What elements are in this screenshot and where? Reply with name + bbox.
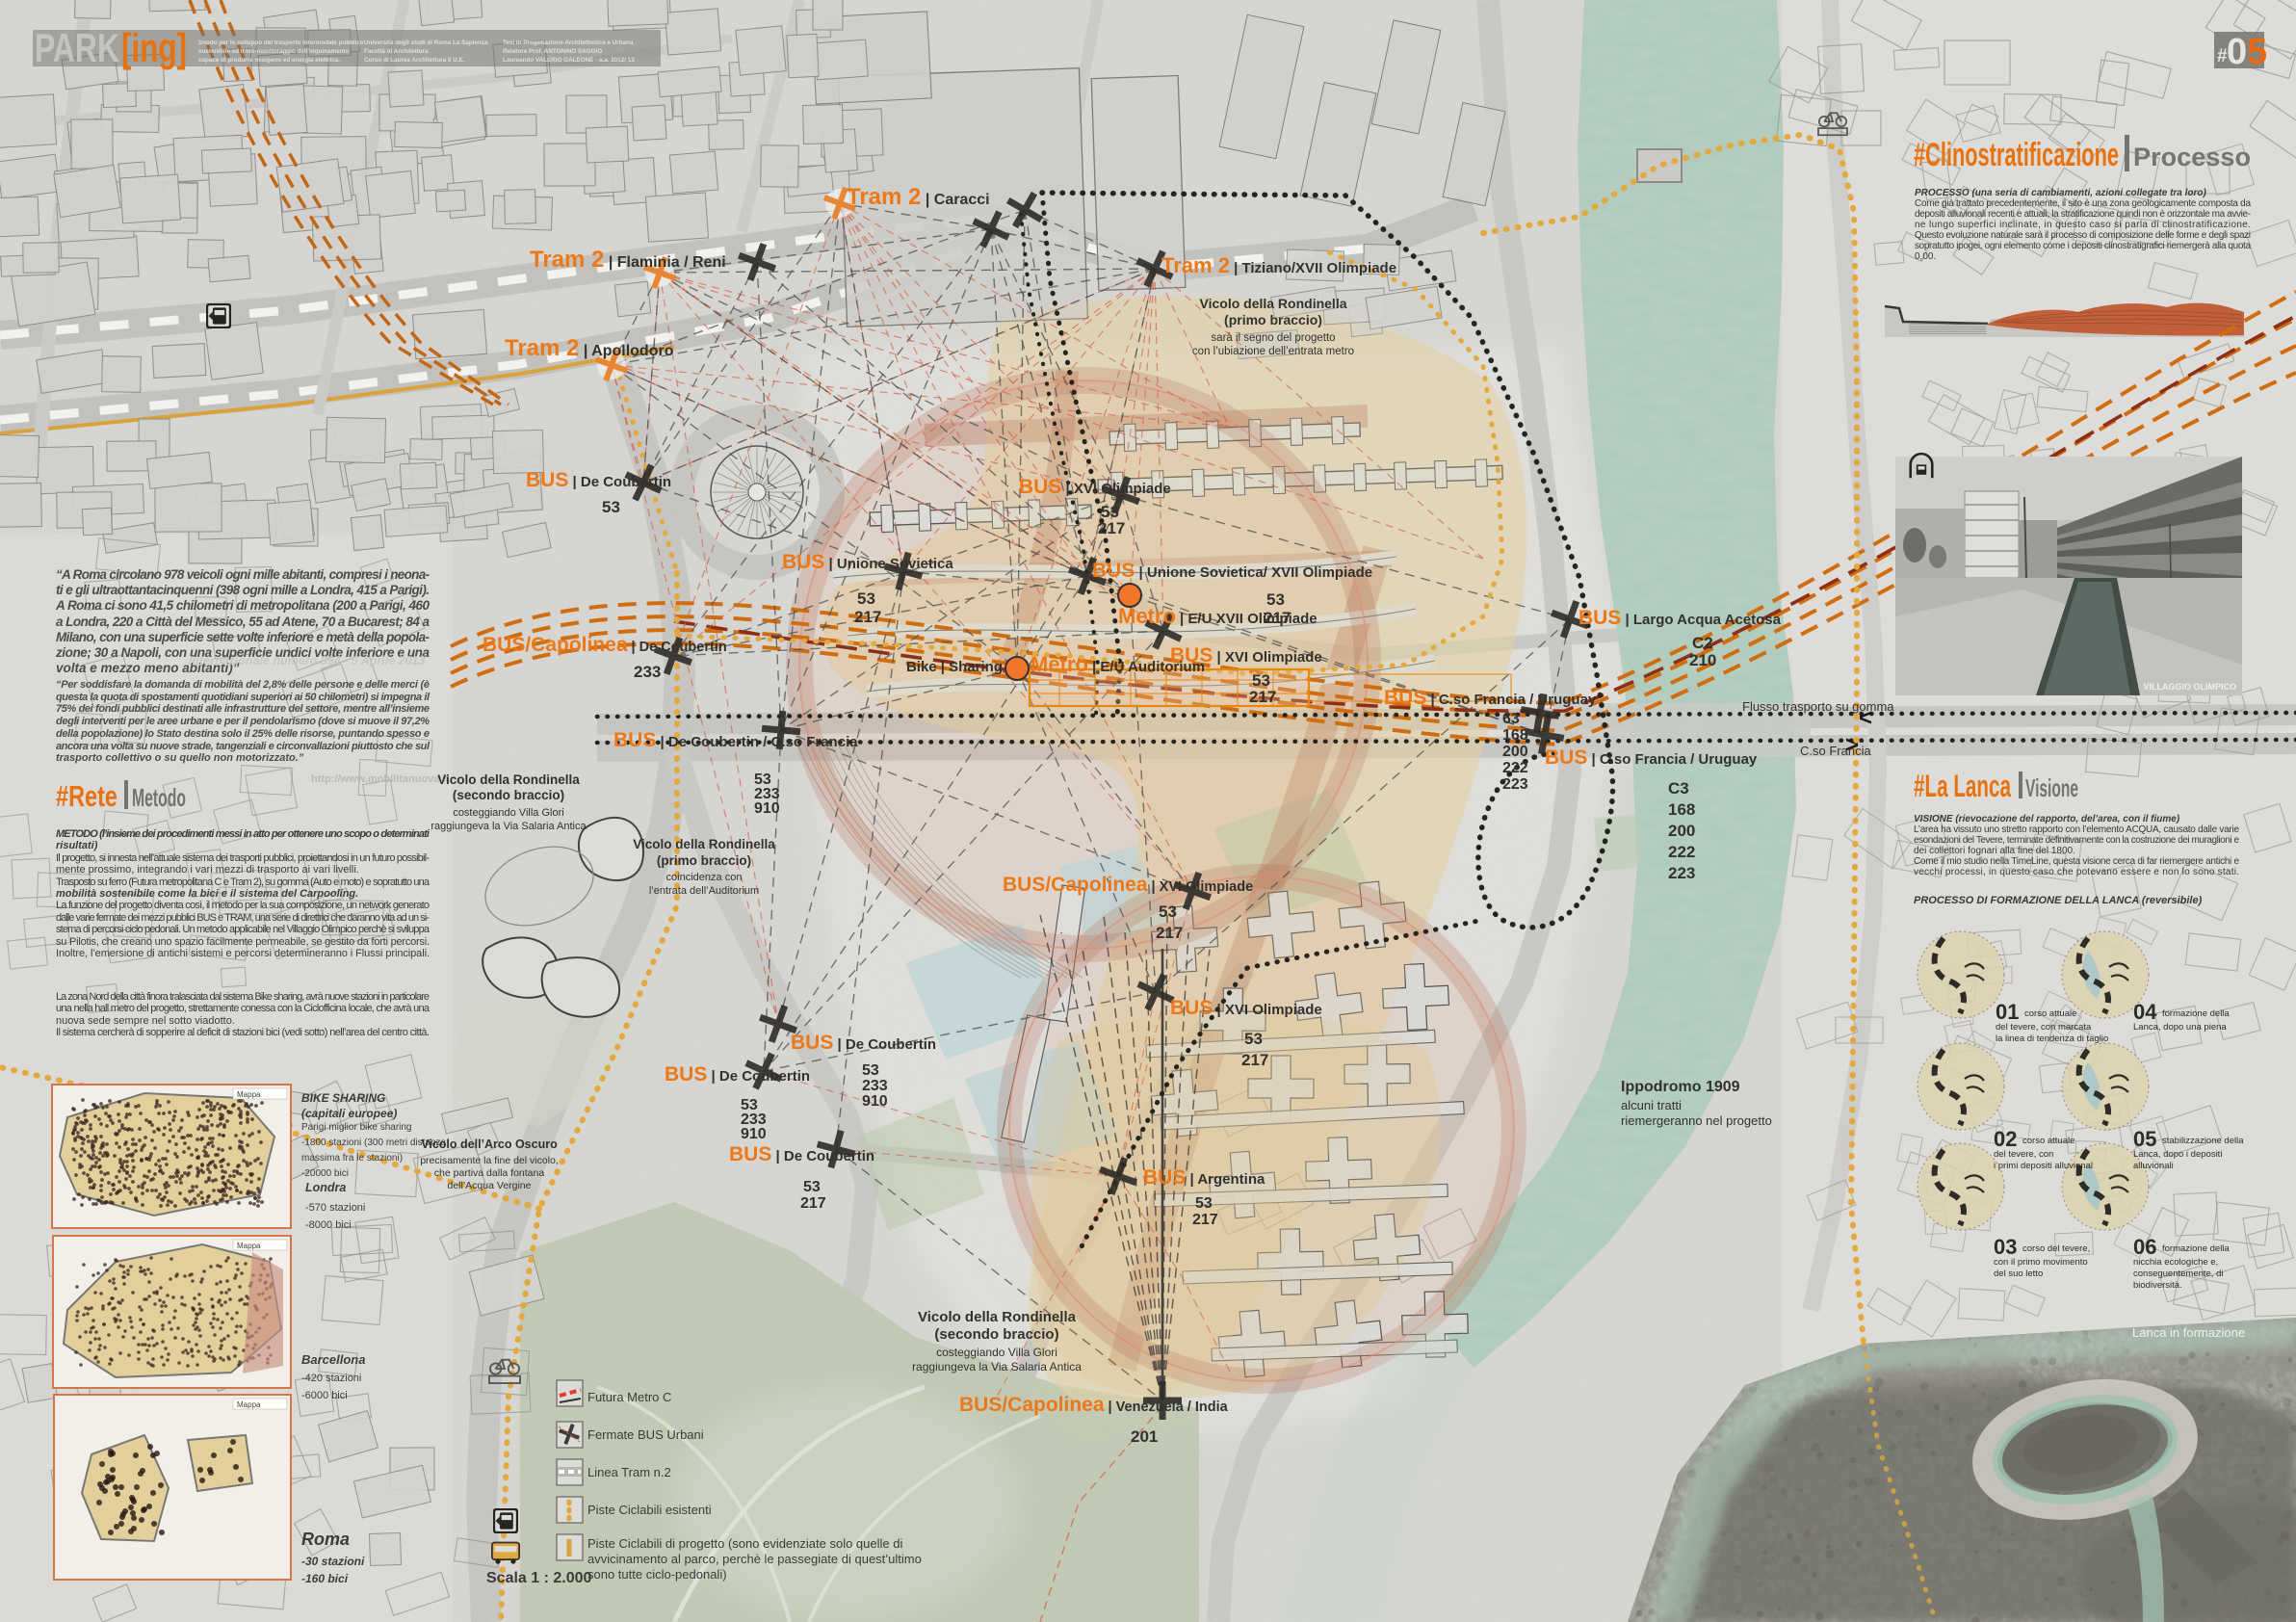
svg-text:223: 223 [1668,864,1695,882]
svg-text:sarà il segno del progetto: sarà il segno del progetto [1211,332,1335,344]
svg-text:217: 217 [1249,688,1276,706]
svg-text:Ippodromo 1909: Ippodromo 1909 [1621,1079,1740,1095]
svg-text:Roma: Roma [301,1530,350,1549]
svg-text:222: 222 [1502,760,1528,776]
svg-text:217: 217 [1192,1212,1218,1228]
svg-text:Lanca in formazione: Lanca in formazione [2132,1325,2245,1340]
svg-text:vecchi processi, in questo cas: vecchi processi, in questo caso che pote… [1914,867,2239,877]
svg-text:questa la quota di spostamenti: questa la quota di spostamenti quotidian… [56,692,430,703]
svg-text:raggiungeva la Via Salaria Ant: raggiungeva la Via Salaria Antica [430,821,587,832]
svg-text:(secondo braccio): (secondo braccio) [934,1326,1058,1343]
svg-text:-420 stazioni: -420 stazioni [301,1373,361,1384]
svg-text:Trasposto su ferro (Futura met: Trasposto su ferro (Futura metropolitana… [56,876,430,888]
svg-text:222: 222 [1668,843,1695,861]
svg-text:la linea di tendenza di taglio: la linea di tendenza di taglio [1996,1033,2108,1044]
svg-text:04: 04 [2133,1000,2157,1024]
svg-text:53: 53 [1266,590,1285,609]
svg-text:con l’ubiazione dell’entrata m: con l’ubiazione dell’entrata metro [1192,346,1354,357]
svg-text:che partiva dalla fontana: che partiva dalla fontana [434,1167,545,1179]
svg-text:“A Roma circolano 978 veicoli: “A Roma circolano 978 veicoli ogni mille… [56,567,430,582]
svg-text:formazione della: formazione della [2162,1008,2230,1019]
svg-text:Inoltre, l’emersione di antich: Inoltre, l’emersione di antichi sistemi … [56,948,430,959]
svg-text:Lanca, dopo i depositi: Lanca, dopo i depositi [2133,1149,2222,1160]
svg-text:910: 910 [754,800,780,817]
svg-text:Scala 1 : 2.000: Scala 1 : 2.000 [486,1570,592,1586]
svg-text:06: 06 [2133,1235,2156,1259]
svg-text:costeggiando Villa Glori: costeggiando Villa Glori [936,1346,1057,1359]
svg-text:53: 53 [1244,1030,1263,1048]
svg-text:168: 168 [1502,727,1528,744]
svg-text:Piste Ciclabili esistenti: Piste Ciclabili esistenti [587,1503,712,1517]
svg-text:Laureando VALERIO GALEONE - a.: Laureando VALERIO GALEONE - a.a. 2012/ 1… [503,57,635,64]
svg-text:-570 stazioni: -570 stazioni [305,1202,365,1214]
svg-text:#Clinostratificazione: #Clinostratificazione [1914,137,2119,173]
svg-text:del tevere, con: del tevere, con [1994,1149,2053,1160]
svg-text:VISIONE (rievocazione del rapp: VISIONE (rievocazione del rapporto, del’… [1914,814,2180,824]
svg-text:BIKE SHARING: BIKE SHARING [301,1091,385,1105]
svg-text:stabilizzazione della: stabilizzazione della [2162,1136,2244,1146]
svg-text:Londra: Londra [305,1181,346,1194]
svg-text:costeggiando Villa Glori: costeggiando Villa Glori [453,807,563,819]
svg-text:riemergeranno nel progetto: riemergeranno nel progetto [1621,1113,1772,1128]
svg-text:Università degli studi di Roma: Università degli studi di Roma La Sapien… [364,39,488,46]
svg-text:depositi alluvionali recenti e: depositi alluvionali recenti e attuali, … [1915,209,2251,220]
svg-text:233: 233 [862,1078,888,1094]
svg-text:massima fra le stazioni): massima fra le stazioni) [301,1153,403,1164]
svg-text:Questo evoluzione naturale sar: Questo evoluzione naturale sarà il proce… [1915,230,2251,241]
svg-text:C.so Francia: C.so Francia [1800,744,1871,758]
svg-text:La zona Nord della città finor: La zona Nord della città finora tralasci… [56,991,430,1003]
svg-text:Snodo per lo sviluppo del tras: Snodo per lo sviluppo del trasporto inte… [198,39,364,46]
svg-text:-30 stazioni: -30 stazioni [301,1555,365,1568]
svg-text:05: 05 [2133,1127,2156,1151]
svg-text:sopratutto ipogei, ogni elemen: sopratutto ipogei, ogni elemento come i … [1915,241,2251,251]
svg-text:mobilità sostenibile come la b: mobilità sostenibile come la bici e il s… [56,888,358,900]
svg-text:http://www.mobilitanuova.it: http://www.mobilitanuova.it [311,773,450,785]
svg-text:coincidenza con: coincidenza con [666,872,743,883]
svg-text:Vicolo della Rondinella: Vicolo della Rondinella [1200,296,1347,311]
svg-text:Fermate BUS Urbani: Fermate BUS Urbani [587,1427,704,1442]
svg-text:sostenibile ed il bio-monitora: sostenibile ed il bio-monitoraggio dell’… [198,48,350,55]
svg-text:ti e gli ultraottantacinquenni: ti e gli ultraottantacinquenni (398 ogni… [56,583,430,597]
svg-text:avvicinamento al parco, perchè: avvicinamento al parco, perchè le passeg… [587,1552,922,1566]
svg-text:Lanca, dopo una piena: Lanca, dopo una piena [2133,1022,2227,1033]
svg-text:Come già trattato precedenteme: Come già trattato precedentemente, il si… [1915,198,2251,209]
svg-text:C3: C3 [1668,779,1689,798]
svg-text:METODO (l’insieme dei procedim: METODO (l’insieme dei procedimenti messi… [56,828,430,840]
svg-text:0: 0 [2227,32,2247,72]
svg-text:mente prossimo, integrando i v: mente prossimo, integrando i vari mezzi … [56,864,359,876]
svg-text:223: 223 [1502,776,1528,793]
svg-text:910: 910 [862,1093,888,1110]
svg-text:Vicolo della Rondinella: Vicolo della Rondinella [437,772,580,787]
svg-text:VILLAGGIO OLIMPICO: VILLAGGIO OLIMPICO [2144,682,2237,692]
svg-text:217: 217 [1156,924,1183,942]
svg-text:02: 02 [1994,1127,2017,1151]
svg-text:A Roma ci sono 41,5 chilometri: A Roma ci sono 41,5 chilometri di metrop… [55,598,430,613]
svg-text:200: 200 [1502,744,1528,760]
svg-text:210: 210 [1689,651,1716,669]
svg-text:217: 217 [1241,1051,1268,1069]
svg-text:01: 01 [1996,1000,2019,1024]
svg-text:corso del tevere,: corso del tevere, [2022,1243,2090,1254]
svg-text:(secondo braccio): (secondo braccio) [453,788,564,802]
svg-text:PARK: PARK [35,25,119,70]
svg-text:5: 5 [2247,32,2267,72]
svg-text:217: 217 [1264,609,1291,627]
svg-text:L’area ha vissuto uno stretto: L’area ha vissuto uno stretto rapporto c… [1914,824,2239,835]
svg-text:Come il mio studio nella TimeL: Come il mio studio nella TimeLine, quest… [1914,856,2239,867]
svg-text:su Pilotis, che creano uno spa: su Pilotis, che creano uno spazio facilm… [56,936,430,948]
svg-text:capace di produrre ossigeno ed: capace di produrre ossigeno ed energia e… [198,57,340,64]
svg-text:nicchia ecologiche e,: nicchia ecologiche e, [2133,1257,2218,1268]
svg-text:(primo braccio): (primo braccio) [1224,312,1322,327]
svg-text:-160 bici: -160 bici [301,1572,349,1585]
svg-text:Internazionale numero 994 - 5: Internazionale numero 994 - 5 Aprile 201… [189,654,426,667]
svg-text:53: 53 [803,1179,821,1195]
svg-text:217: 217 [800,1195,826,1212]
svg-text:della popolazione) lo Stato de: della popolazione) lo Stato destina solo… [56,728,430,740]
svg-text:dell’Acqua Vergine: dell’Acqua Vergine [448,1180,532,1191]
svg-text:PROCESSO DI FORMAZIONE DELLA L: PROCESSO DI FORMAZIONE DELLA LANCA (reve… [1914,895,2203,906]
svg-text:(primo braccio): (primo braccio) [657,853,751,868]
svg-text:63: 63 [1502,711,1520,727]
svg-text:Flusso trasporto su gomma: Flusso trasporto su gomma [1742,699,1894,714]
svg-text:168: 168 [1668,800,1695,819]
svg-text:Bike | Sharing: Bike | Sharing [906,659,1003,675]
svg-text:raggiungeva la Via Salaria Ant: raggiungeva la Via Salaria Antica [912,1360,1082,1373]
svg-text:Vicolo dell’Arco Oscuro: Vicolo dell’Arco Oscuro [421,1138,558,1151]
svg-text:Barcellona: Barcellona [301,1352,365,1367]
svg-text:03: 03 [1994,1235,2017,1259]
svg-text:nuova sede sempre nel sotto vi: nuova sede sempre nel sotto viadotto. [56,1015,235,1027]
svg-text:una nella hall metro del proge: una nella hall metro del progetto, stret… [56,1003,430,1014]
svg-text:-8000 bici: -8000 bici [305,1219,352,1231]
svg-text:-6000 bici: -6000 bici [301,1390,348,1401]
svg-text:Vicolo della Rondinella: Vicolo della Rondinella [633,837,775,851]
svg-text:dei collettori fognari alla fi: dei collettori fognari alla fine del 180… [1914,846,2075,856]
svg-text:corso attuale: corso attuale [2024,1008,2076,1019]
svg-text:ancora una volta su nuove stra: ancora una volta su nuove strade, tangen… [56,741,430,752]
svg-text:53: 53 [1195,1195,1213,1212]
svg-text:0,00.: 0,00. [1915,251,1936,262]
svg-text:75% dei fondi pubblici destina: 75% dei fondi pubblici destinati alle in… [56,703,430,715]
svg-text:[ing]: [ing] [121,25,187,70]
svg-text:trasporto collettivo o su quel: trasporto collettivo o su quello non mot… [56,752,304,764]
svg-text:alluvionali: alluvionali [2133,1161,2174,1171]
svg-text:del suo letto: del suo letto [1994,1269,2043,1279]
svg-text:La funzione del progetto diven: La funzione del progetto diventa così, i… [56,900,430,911]
svg-text:del tevere, con marcata: del tevere, con marcata [1996,1022,2092,1033]
svg-text:esondazioni del Tevere, termin: esondazioni del Tevere, terminate defini… [1914,835,2239,846]
svg-text:conseguentemente, di: conseguentemente, di [2133,1269,2223,1279]
svg-text:#Rete: #Rete [56,779,117,813]
svg-text:PROCESSO (una seria di cambiam: PROCESSO (una seria di cambiamenti, azio… [1915,188,2207,198]
svg-text:Mappa: Mappa [237,1400,261,1409]
svg-text:Mappa: Mappa [237,1242,261,1250]
svg-text:risultati): risultati) [56,840,98,851]
svg-text:Piste Ciclabili di progetto (s: Piste Ciclabili di progetto (sono eviden… [587,1536,902,1551]
svg-text:Processo: Processo [2133,143,2251,171]
svg-text:i primi depositi alluvional: i primi depositi alluvional [1994,1161,2093,1171]
svg-text:233: 233 [634,663,661,681]
svg-text:53: 53 [602,498,620,516]
svg-text:l’entrata dell’Auditorium: l’entrata dell’Auditorium [649,885,759,897]
svg-text:con il primo movimento: con il primo movimento [1994,1257,2088,1268]
svg-text:-20000 bici: -20000 bici [301,1168,349,1179]
svg-text:degli interventi per le aree u: degli interventi per le aree urbane e pe… [56,716,430,727]
svg-text:Il progetto, si innesta nell’: Il progetto, si innesta nell’attuale sis… [56,852,430,864]
svg-text:precisamente la fine del vicol: precisamente la fine del vicolo, [420,1155,559,1166]
svg-text:Linea Tram n.2: Linea Tram n.2 [587,1465,671,1479]
svg-text:910: 910 [741,1126,767,1142]
svg-text:ne lungo superfici inclinate,: ne lungo superfici inclinate, in questo … [1915,220,2251,230]
svg-text:Vicolo della Rondinella: Vicolo della Rondinella [918,1309,1077,1325]
svg-text:C2: C2 [1692,634,1713,652]
svg-text:Relatore Prof. ANTONINO SAGGIO: Relatore Prof. ANTONINO SAGGIO [503,48,602,55]
svg-text:sono tutte ciclo-pedonali): sono tutte ciclo-pedonali) [587,1567,727,1582]
svg-text:Tesi in Progettazione Architet: Tesi in Progettazione Architettonica e U… [503,39,634,46]
svg-text:Facoltà di Architettura: Facoltà di Architettura [364,48,429,55]
svg-text:Parigi miglior bike sharing: Parigi miglior bike sharing [301,1122,412,1133]
svg-text:dalle varie fermate dei mezzi: dalle varie fermate dei mezzi pubblici B… [56,912,430,924]
svg-text:stema di percorsi ciclo pedona: stema di percorsi ciclo pedonali. Un met… [56,924,430,935]
svg-text:alcuni tratti: alcuni tratti [1621,1098,1682,1112]
svg-text:(capitali europee): (capitali europee) [301,1107,397,1120]
svg-text:Il sistema cercherà di sopperi: Il sistema cercherà di sopperire al defi… [56,1027,430,1038]
svg-text:217: 217 [854,608,881,626]
svg-text:Mappa: Mappa [237,1090,261,1099]
svg-text:Corso di Laurea Architettura 5: Corso di Laurea Architettura 5 U.E. [364,57,465,64]
svg-text:53: 53 [1159,903,1177,921]
svg-text:Metodo: Metodo [132,783,186,812]
svg-text:Visione: Visione [2025,773,2078,802]
svg-text:“Per soddisfare la domanda di: “Per soddisfare la domanda di mobilità d… [56,679,430,691]
svg-text:Milano, con una superficie set: Milano, con una superficie sette volte i… [56,630,430,644]
svg-text:217: 217 [1098,519,1125,537]
svg-text:Futura Metro C: Futura Metro C [587,1390,671,1404]
svg-text:53: 53 [862,1062,879,1079]
svg-text:200: 200 [1668,822,1695,840]
svg-text:53: 53 [857,589,875,608]
svg-text:biodiversità.: biodiversità. [2133,1280,2182,1291]
svg-text:formazione della: formazione della [2162,1243,2230,1254]
svg-text:a Londra, 220 a Città del Mess: a Londra, 220 a Città del Messico, 55 ad… [56,615,430,629]
svg-text:corso attuale: corso attuale [2022,1136,2074,1146]
svg-text:201: 201 [1131,1427,1158,1446]
svg-text:#La Lanca: #La Lanca [1914,769,2011,803]
